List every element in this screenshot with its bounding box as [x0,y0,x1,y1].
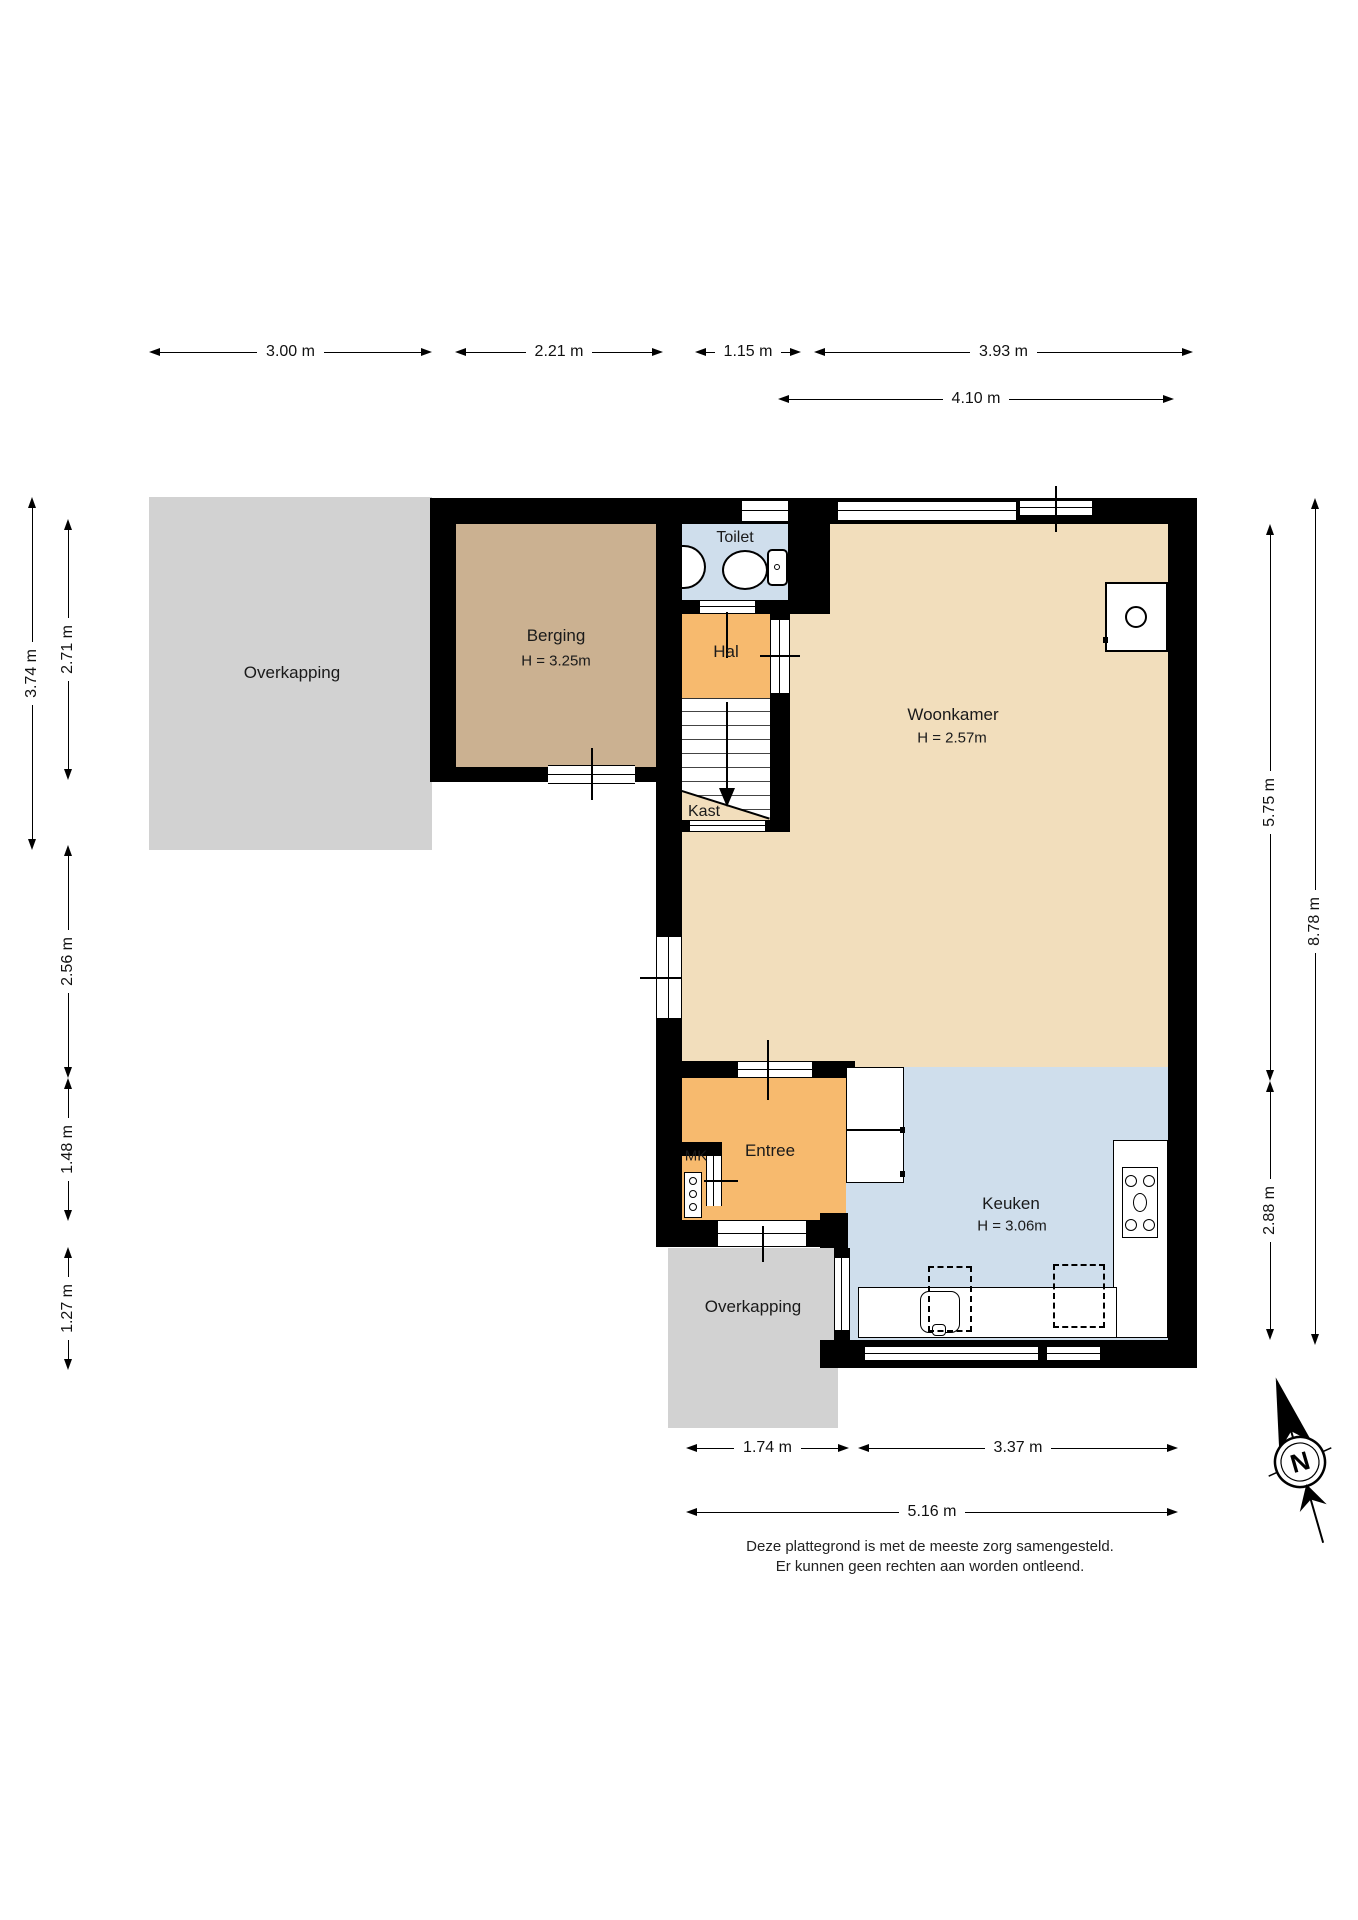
keuken-west-window [834,1258,850,1330]
dimension-bottom-174: 1.74 m [686,1438,849,1458]
woonkamer-top-window-1 [838,501,1016,521]
wall-entree-keuken-stub [820,1213,848,1248]
north-compass-icon: N [1248,1368,1352,1558]
wall-keuken-west-bottom [834,1330,850,1340]
door-tick [762,1226,764,1262]
room-label-kast: Kast [688,803,720,821]
room-height-woonkamer: H = 2.57m [917,730,987,747]
overkapping-bottom-area [668,1248,838,1428]
dimension-bottom-516: 5.16 m [686,1502,1178,1522]
kitchen-cabinet-bottom [846,1130,904,1183]
room-label-overkapping-bottom: Overkapping [705,1297,801,1317]
dimension-right-575: 5.75 m [1260,524,1280,1081]
dimension-right-288: 2.88 m [1260,1081,1280,1340]
under-counter-appliance [1053,1264,1105,1328]
room-label-entree: Entree [745,1141,795,1161]
kast-opening [690,820,765,832]
door-tick [760,655,800,657]
burner [1125,1219,1137,1231]
dimension-left-256: 2.56 m [58,845,78,1078]
room-height-keuken: H = 3.06m [977,1218,1047,1235]
room-label-woonkamer: Woonkamer [907,705,998,725]
wall-berging-left [430,498,456,782]
entree-door [738,1061,812,1078]
wall-west [656,498,682,1247]
dimension-bottom-337: 3.37 m [858,1438,1178,1458]
burner [1143,1175,1155,1187]
cabinet-hinge [900,1171,905,1177]
dimension-top-3: 1.15 m [695,342,801,362]
stove-flue-circle [1125,606,1147,628]
room-label-toilet: Toilet [716,529,753,547]
cabinet-hinge [900,1127,905,1133]
stove-notch [1103,637,1108,643]
stairs-direction-line [726,702,728,788]
toilet-window [742,500,788,522]
footer-line-2: Er kunnen geen rechten aan worden ontlee… [530,1557,1330,1577]
wall-keuken-west-top [834,1248,850,1258]
floorplan-canvas: Overkapping Berging H = 3.25m Toilet Hal… [0,0,1358,1920]
hal-door [770,620,790,693]
room-label-berging: Berging [527,626,586,646]
meter-dial [689,1177,697,1185]
door-tick [591,748,593,800]
meter-dial [689,1203,697,1211]
woonkamer-floor-west [682,832,790,1061]
window-tick [640,977,682,979]
door-tick [767,1040,769,1100]
room-height-berging: H = 3.25m [521,653,591,670]
wall-right [1168,498,1197,1368]
keuken-bottom-window-1 [865,1346,1038,1361]
under-counter-appliance [928,1266,972,1332]
dimension-top-410: 4.10 m [778,389,1174,409]
dimension-left-374: 3.74 m [22,497,42,850]
footer-line-1: Deze plattegrond is met de meeste zorg s… [530,1537,1330,1557]
keuken-bottom-window-2 [1047,1346,1100,1361]
kitchen-cabinet-top [846,1067,904,1130]
burner [1125,1175,1137,1187]
room-label-keuken: Keuken [982,1194,1040,1214]
dimension-left-148: 1.48 m [58,1078,78,1221]
toilet-bowl [722,550,768,590]
door-tick [704,1180,738,1182]
room-label-mk: MK [685,1148,708,1165]
stairs-arrow-down-icon [719,788,735,807]
room-label-hal: Hal [713,642,739,662]
footer-disclaimer: Deze plattegrond is met de meeste zorg s… [530,1537,1330,1577]
burner [1143,1219,1155,1231]
toilet-door [700,600,755,614]
room-label-overkapping-top: Overkapping [244,663,340,683]
dimension-top-2: 2.21 m [455,342,663,362]
dimension-top-4: 3.93 m [814,342,1193,362]
dimension-left-127: 1.27 m [58,1247,78,1370]
cistern-button [774,564,780,570]
dimension-top-1: 3.00 m [149,342,432,362]
window-tick [1055,486,1057,532]
meter-dial [689,1190,697,1198]
wall-toilet-right [788,524,830,614]
dimension-right-878: 8.78 m [1305,498,1325,1345]
wok-burner [1133,1193,1147,1212]
dimension-left-271: 2.71 m [58,519,78,780]
